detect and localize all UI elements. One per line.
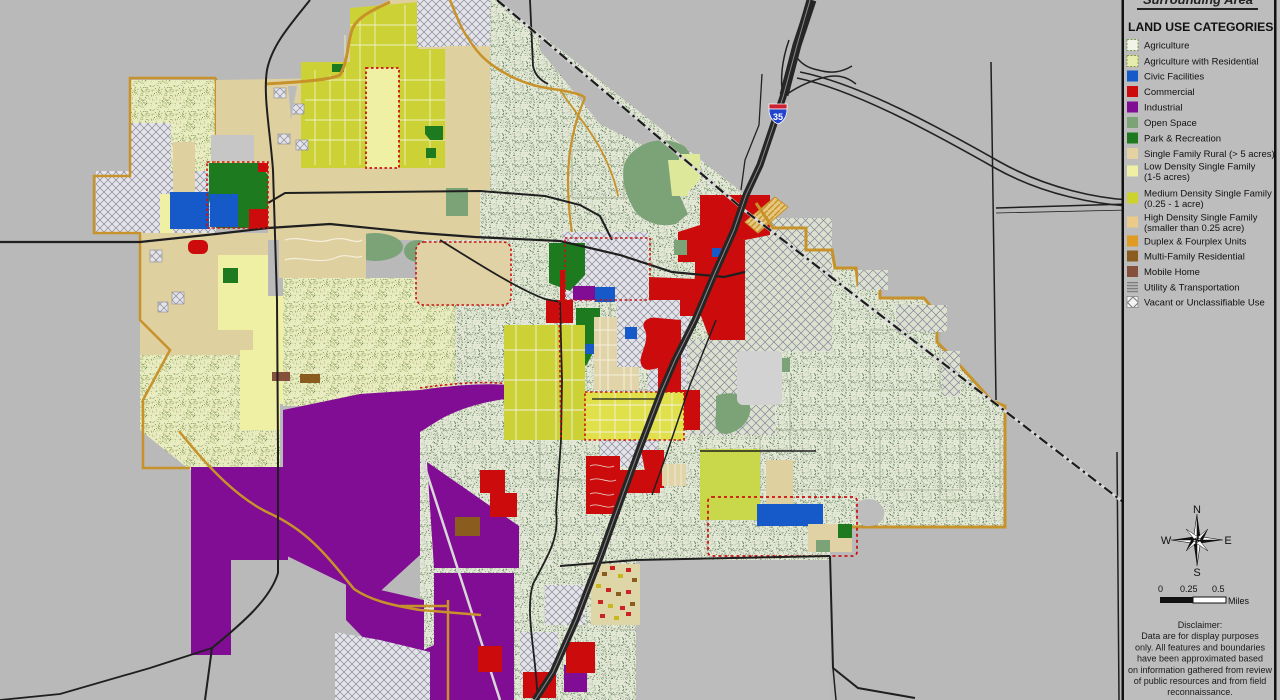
svg-text:(0.25 - 1 acre): (0.25 - 1 acre): [1144, 199, 1204, 210]
svg-text:Park & Recreation: Park & Recreation: [1144, 134, 1221, 145]
svg-text:Low Density Single Family: Low Density Single Family: [1144, 162, 1256, 173]
svg-text:only. All features and bounda: only. All features and boundaries: [1135, 642, 1265, 652]
svg-text:Multi-Family Residential: Multi-Family Residential: [1144, 252, 1245, 263]
svg-text:(smaller than 0.25 acre): (smaller than 0.25 acre): [1144, 223, 1244, 234]
svg-text:Miles: Miles: [1228, 596, 1250, 606]
svg-text:Commercial: Commercial: [1144, 87, 1195, 98]
svg-text:have been approximated based: have been approximated based: [1137, 654, 1263, 664]
svg-text:N: N: [1193, 504, 1201, 516]
svg-text:Industrial: Industrial: [1144, 103, 1183, 114]
svg-text:Single Family Rural (> 5 acres: Single Family Rural (> 5 acres): [1144, 149, 1275, 160]
svg-text:on information gathered from r: on information gathered from review: [1128, 665, 1273, 675]
svg-text:Open Space: Open Space: [1144, 118, 1197, 129]
svg-text:Duplex & Fourplex Units: Duplex & Fourplex Units: [1144, 237, 1247, 248]
svg-text:0.25: 0.25: [1180, 584, 1198, 594]
svg-text:0.5: 0.5: [1212, 584, 1225, 594]
svg-text:Medium Density Single Family: Medium Density Single Family: [1144, 189, 1272, 200]
svg-text:High Density Single Family: High Density Single Family: [1144, 213, 1258, 224]
svg-text:Data are for display purposes: Data are for display purposes: [1141, 631, 1259, 641]
svg-text:Utility & Transportation: Utility & Transportation: [1144, 283, 1240, 294]
svg-text:Vacant or Unclassifiable Use: Vacant or Unclassifiable Use: [1144, 298, 1265, 309]
svg-text:(1-5 acres): (1-5 acres): [1144, 172, 1190, 183]
svg-text:Surrounding Area: Surrounding Area: [1143, 0, 1253, 7]
svg-text:of public resources and from f: of public resources and from field: [1134, 676, 1267, 686]
svg-text:Civic Facilities: Civic Facilities: [1144, 72, 1204, 83]
svg-text:Mobile Home: Mobile Home: [1144, 267, 1200, 278]
svg-text:S: S: [1193, 567, 1200, 579]
svg-text:Agriculture with Residential: Agriculture with Residential: [1144, 57, 1259, 68]
svg-text:Disclaimer:: Disclaimer:: [1178, 620, 1223, 630]
svg-text:reconnaissance.: reconnaissance.: [1167, 687, 1233, 697]
svg-text:Agriculture: Agriculture: [1144, 41, 1189, 52]
svg-text:W: W: [1161, 535, 1172, 547]
svg-text:E: E: [1224, 535, 1231, 547]
svg-text:0: 0: [1158, 584, 1163, 594]
svg-text:LAND USE CATEGORIES: LAND USE CATEGORIES: [1128, 20, 1273, 34]
svg-text:35: 35: [773, 112, 783, 122]
